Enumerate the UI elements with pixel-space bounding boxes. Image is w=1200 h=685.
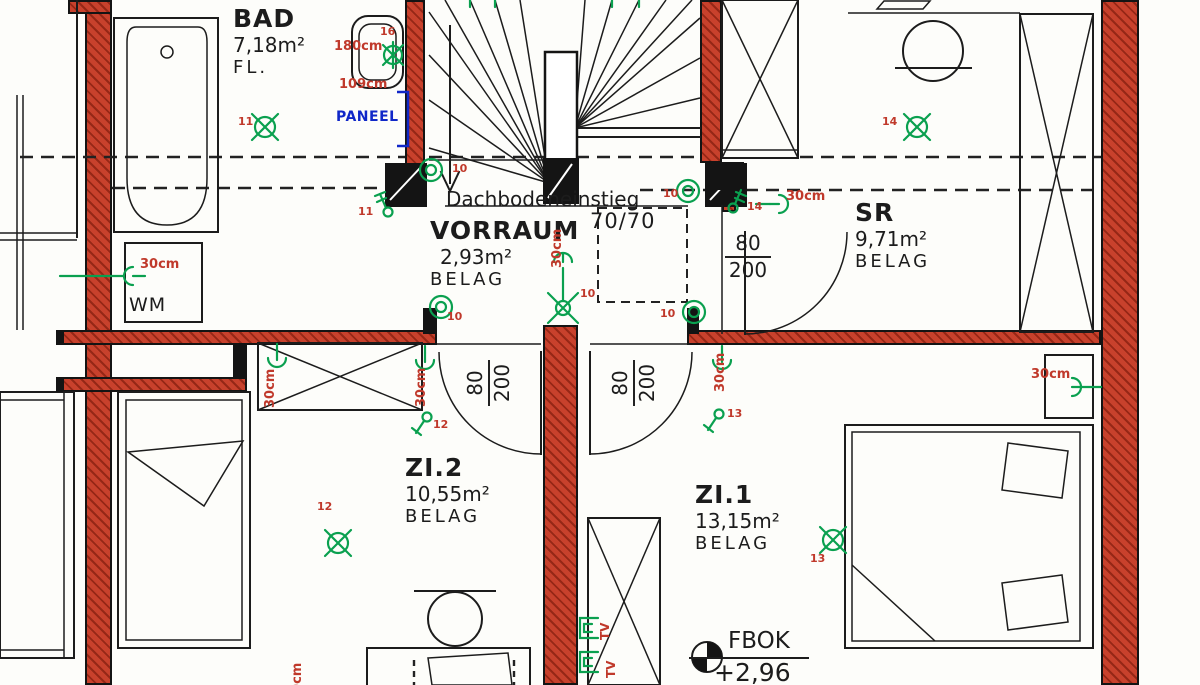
room-finish: BELAG	[855, 253, 930, 272]
ceiling-lamp-icon	[820, 527, 846, 553]
annotation-label: 30cm	[1031, 368, 1070, 381]
annotation-label: TV	[599, 623, 611, 640]
annotation-label: 180cm	[334, 40, 382, 53]
switch-icon	[704, 410, 724, 433]
door-width: 80	[610, 370, 631, 395]
annotation-label: 16	[380, 26, 395, 37]
ceiling-lamp-icon	[904, 114, 930, 140]
zi2-desk-icon	[367, 648, 530, 685]
sr-basin-icon	[848, 1, 1020, 81]
annotation-label: 12	[317, 501, 332, 512]
room-label-sr: SR 9,71m² BELAG	[855, 200, 930, 272]
door-dim-zi2: 80 200	[465, 338, 513, 428]
staircase	[429, 0, 700, 204]
socket-icon	[60, 267, 145, 285]
paneel-label: PANEEL	[336, 109, 399, 125]
socket-icon	[416, 346, 434, 369]
ceiling-lamp-icon	[325, 530, 351, 556]
annotation-label: 30cm	[786, 190, 825, 203]
annotation-label: 10	[663, 188, 678, 199]
room-label-bad: BAD 7,18m² FL.	[233, 6, 305, 78]
washing-machine-label: WM	[129, 294, 166, 316]
room-name: ZI.1	[695, 482, 780, 508]
switch-icon	[412, 413, 432, 436]
annotation-label: TV	[605, 661, 617, 678]
annotation-label: 13	[810, 553, 825, 564]
annotation-label: 10	[660, 308, 675, 319]
annotation-label: 30cm	[291, 663, 304, 685]
annotation-label: 13	[727, 408, 742, 419]
toilet-connection-icon	[383, 42, 403, 68]
room-finish: FL.	[233, 59, 305, 78]
zi1-wardrobe-icon	[588, 518, 660, 685]
zi2-chair-icon	[415, 591, 495, 646]
annotation-label: 109cm	[339, 78, 387, 91]
room-label-zi2: ZI.2 10,55m² BELAG	[405, 455, 490, 527]
door-height: 200	[492, 364, 513, 402]
ceiling-lamp-icon	[252, 114, 278, 140]
socket-icon	[1072, 378, 1101, 396]
door-dim-sr: 80 200	[703, 233, 793, 281]
annotation-label: 14	[747, 201, 762, 212]
neighbor-room-lines	[0, 0, 77, 330]
room-finish: BELAG	[430, 271, 579, 290]
room-area: 9,71m²	[855, 229, 930, 250]
bathtub-icon	[114, 18, 218, 232]
annotation-label: 11	[238, 116, 253, 127]
zi2-wardrobe-icon	[258, 343, 422, 410]
sr-shaft-icon	[722, 0, 798, 158]
annotation-label: 14	[882, 116, 897, 127]
neighbor-bed-icon	[0, 392, 74, 658]
door-width: 80	[735, 233, 760, 254]
room-name: BAD	[233, 6, 305, 32]
zi2-bed-icon	[118, 392, 250, 648]
room-finish: BELAG	[405, 508, 490, 527]
plan-linework	[0, 0, 1200, 685]
annotation-label: 10	[447, 311, 462, 322]
room-name: ZI.2	[405, 455, 490, 481]
door-dim-zi1: 80 200	[610, 338, 658, 428]
door-height: 200	[637, 364, 658, 402]
room-area: 7,18m²	[233, 35, 305, 56]
room-label-zi1: ZI.1 13,15m² BELAG	[695, 482, 780, 554]
annotation-label: 30cm	[140, 258, 179, 271]
zi1-bed-icon	[845, 425, 1093, 648]
room-area: 13,15m²	[695, 511, 780, 532]
floor-plan: BAD 7,18m² FL. VORRAUM 2,93m² BELAG SR 9…	[0, 0, 1200, 685]
annotation-label: 10	[452, 163, 467, 174]
paneel-bracket	[397, 92, 408, 146]
sr-wardrobe-icon	[1020, 14, 1093, 332]
attic-size-label: 70/70	[590, 209, 656, 233]
annotation-label: 12	[433, 419, 448, 430]
annotation-label: 10	[580, 288, 595, 299]
level-marker-label: FBOK	[728, 628, 790, 654]
room-name: SR	[855, 200, 930, 226]
door-width: 80	[465, 370, 486, 395]
room-area: 10,55m²	[405, 484, 490, 505]
annotation-label: 30cm	[551, 229, 564, 268]
stair-newel	[545, 52, 577, 160]
room-finish: BELAG	[695, 535, 780, 554]
door-height: 200	[729, 260, 767, 281]
annotation-label: 11	[358, 206, 373, 217]
attic-access-label: Dachbodeneinstieg	[446, 187, 639, 211]
annotation-label: 30cm	[714, 353, 727, 392]
annotation-label: 30cm	[415, 368, 428, 407]
annotation-label: 30cm	[264, 369, 277, 408]
level-marker-value: +2,96	[714, 658, 791, 685]
